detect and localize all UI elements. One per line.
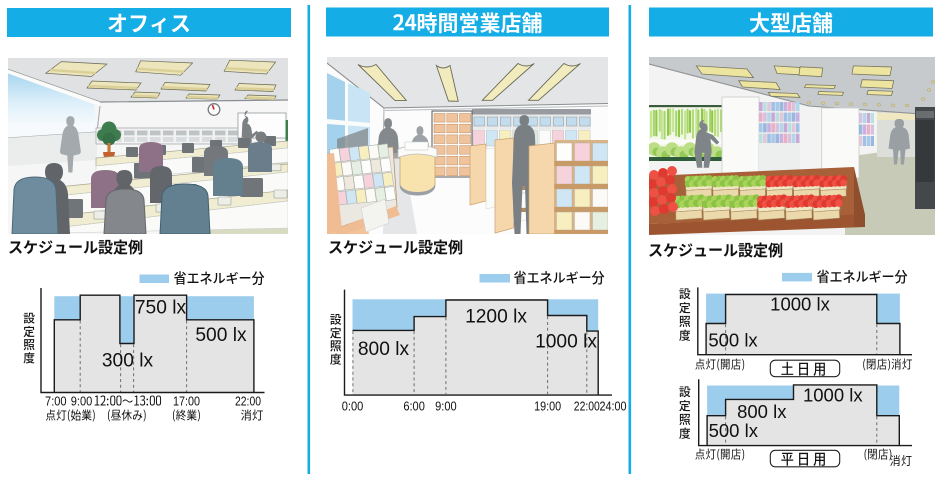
svg-text:9:00: 9:00 xyxy=(71,394,93,409)
svg-text:1000 lx: 1000 lx xyxy=(770,294,830,315)
svg-text:19:00: 19:00 xyxy=(534,399,561,414)
svg-text:9:00: 9:00 xyxy=(435,399,457,414)
svg-text:300 lx: 300 lx xyxy=(102,351,154,372)
svg-text:500 lx: 500 lx xyxy=(195,325,247,346)
svg-text:24:00: 24:00 xyxy=(600,399,627,414)
svg-text:0:00: 0:00 xyxy=(342,399,364,414)
svg-text:1000 lx: 1000 lx xyxy=(535,332,597,353)
svg-text:6:00: 6:00 xyxy=(403,399,425,414)
svg-text:1200 lx: 1200 lx xyxy=(465,307,527,328)
svg-text:800 lx: 800 lx xyxy=(358,339,410,360)
svg-text:750 lx: 750 lx xyxy=(135,298,187,319)
svg-text:800 lx: 800 lx xyxy=(737,401,787,422)
svg-text:17:00: 17:00 xyxy=(173,394,200,409)
svg-text:22:00: 22:00 xyxy=(574,399,600,414)
svg-text:7:00: 7:00 xyxy=(45,394,67,409)
svg-text:500 lx: 500 lx xyxy=(709,420,759,441)
svg-text:22:00: 22:00 xyxy=(235,394,261,409)
svg-text:500 lx: 500 lx xyxy=(708,330,758,351)
svg-text:1000 lx: 1000 lx xyxy=(803,385,863,406)
